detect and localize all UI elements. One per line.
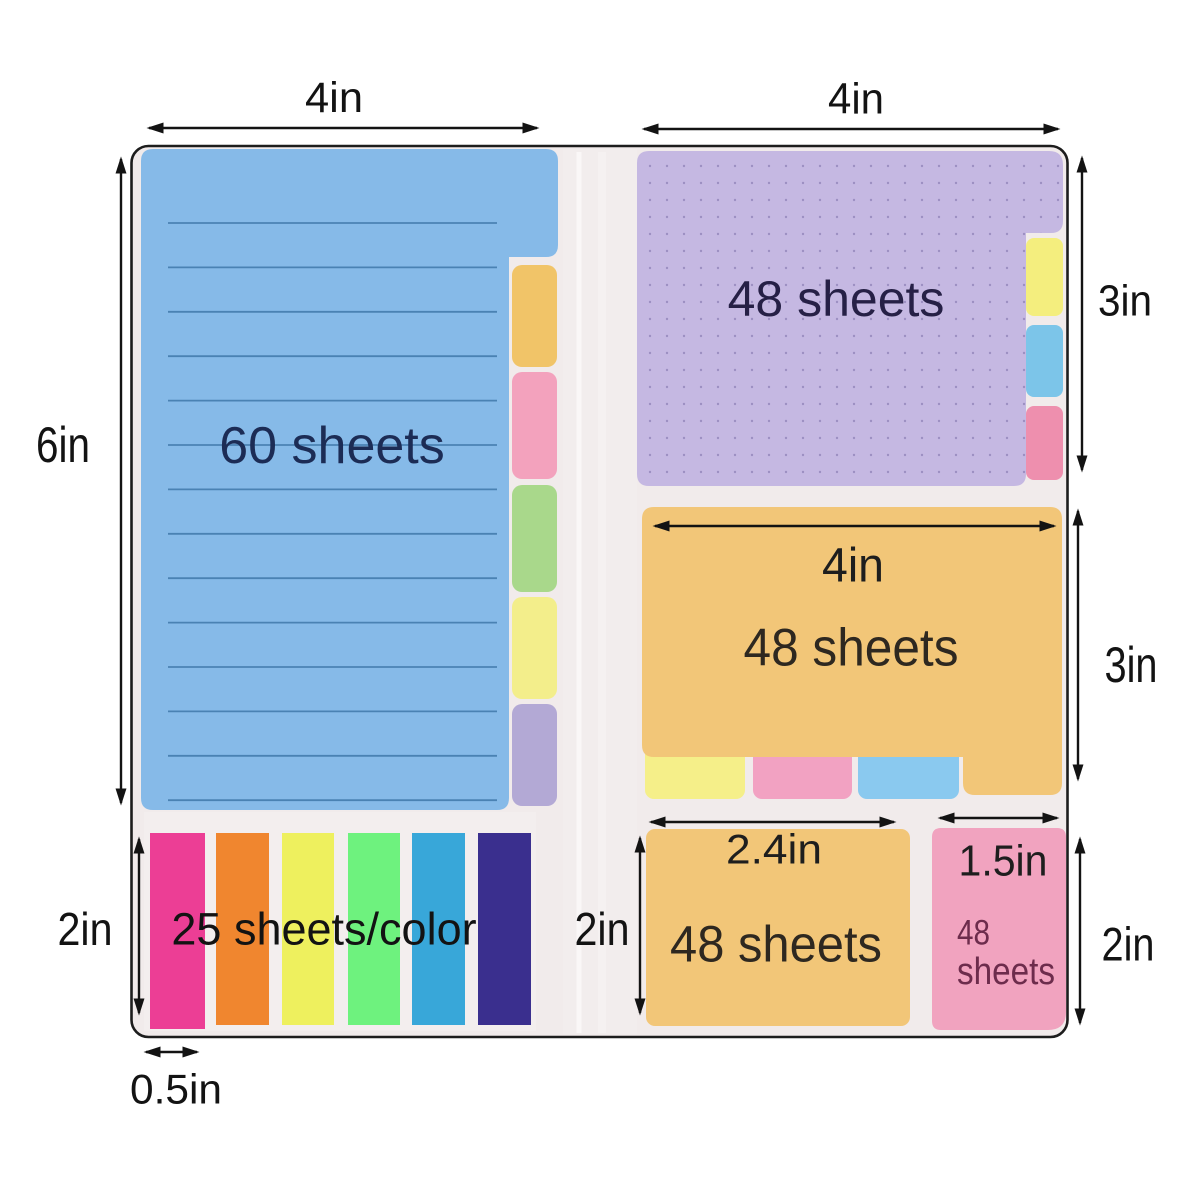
svg-text:2in: 2in [1102, 918, 1155, 971]
svg-text:3in: 3in [1105, 637, 1158, 693]
svg-text:2in: 2in [58, 903, 113, 955]
svg-text:1.5in: 1.5in [959, 837, 1048, 886]
svg-text:48 sheets: 48 sheets [744, 619, 959, 678]
svg-text:3in: 3in [1098, 277, 1152, 326]
svg-text:48: 48 [957, 914, 990, 953]
svg-text:2in: 2in [575, 903, 630, 955]
svg-text:4in: 4in [305, 74, 363, 122]
svg-text:48 sheets: 48 sheets [728, 271, 945, 327]
svg-text:25 sheets/color: 25 sheets/color [171, 904, 476, 955]
svg-text:sheets: sheets [957, 951, 1055, 993]
svg-text:2.4in: 2.4in [726, 826, 822, 873]
svg-text:0.5in: 0.5in [130, 1066, 222, 1113]
svg-text:4in: 4in [822, 540, 884, 593]
svg-text:6in: 6in [36, 417, 90, 473]
svg-text:48 sheets: 48 sheets [670, 916, 882, 973]
svg-text:4in: 4in [828, 75, 884, 124]
svg-text:60 sheets: 60 sheets [219, 417, 445, 475]
